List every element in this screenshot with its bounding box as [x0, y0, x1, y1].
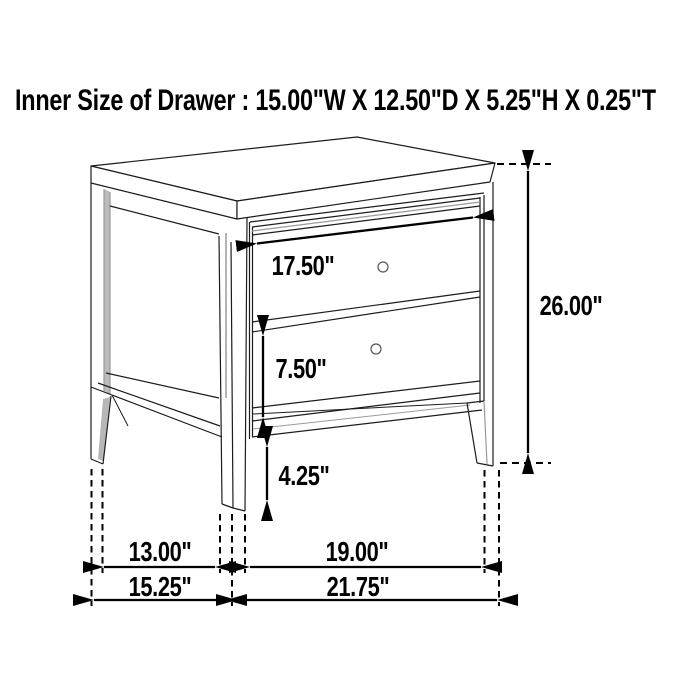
left-side-panel	[91, 183, 226, 459]
front-left-leg	[219, 217, 247, 511]
nightstand-structure	[91, 137, 495, 511]
dim-label-leg-clearance: 4.25"	[279, 462, 330, 490]
dim-label-depth-overall: 15.25"	[129, 573, 192, 601]
page-title: Inner Size of Drawer : 15.00"W X 12.50"D…	[15, 86, 656, 116]
dim-label-drawer-opening-width: 17.50"	[272, 252, 335, 280]
dim-label-width-overall: 21.75"	[327, 573, 390, 601]
bottom-drawer-knob	[371, 344, 381, 354]
dim-label-side-leg-spacing: 13.00"	[129, 538, 192, 566]
dimension-diagram-page: Inner Size of Drawer : 15.00"W X 12.50"D…	[0, 0, 700, 700]
top-drawer-knob	[378, 262, 388, 272]
dim-label-overall-height: 26.00"	[540, 292, 603, 320]
top-slab	[91, 137, 495, 219]
dim-label-front-leg-spacing: 19.00"	[326, 538, 389, 566]
back-left-leg	[91, 396, 111, 464]
dim-label-drawer-front-height: 7.50"	[276, 355, 327, 383]
